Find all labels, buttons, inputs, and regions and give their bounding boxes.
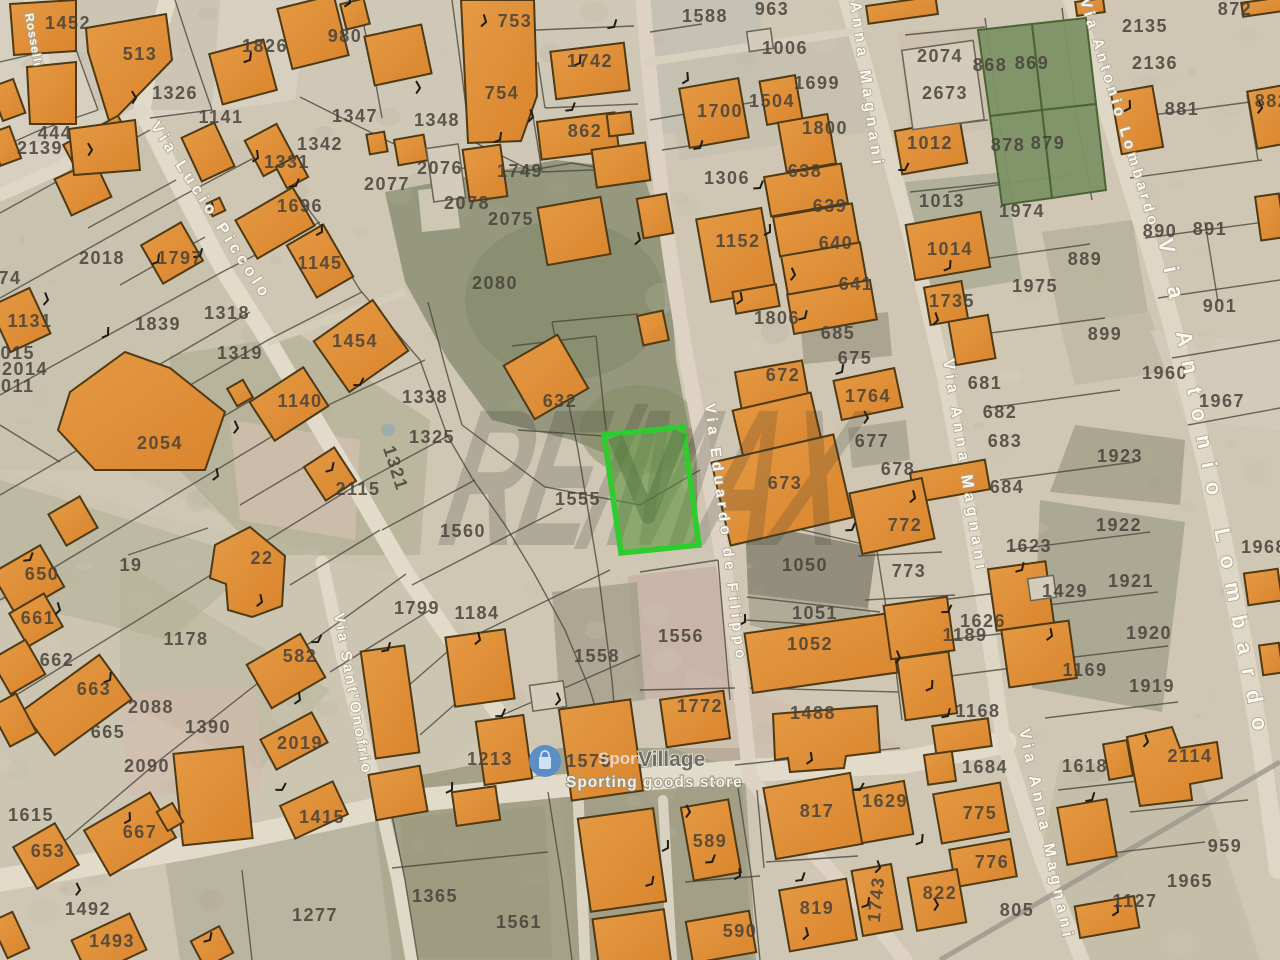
svg-text:678: 678 <box>881 459 916 479</box>
svg-text:2136: 2136 <box>1132 53 1178 73</box>
svg-text:2076: 2076 <box>417 158 463 178</box>
svg-text:868: 868 <box>973 55 1008 75</box>
svg-text:1277: 1277 <box>292 905 338 925</box>
svg-text:2075: 2075 <box>488 209 534 229</box>
svg-text:2135: 2135 <box>1122 16 1168 36</box>
svg-text:513: 513 <box>123 44 158 64</box>
svg-text:891: 891 <box>1193 219 1228 239</box>
svg-text:675: 675 <box>838 348 873 368</box>
svg-text:1052: 1052 <box>787 634 833 654</box>
svg-text:662: 662 <box>40 650 75 670</box>
svg-text:1326: 1326 <box>152 83 198 103</box>
svg-text:Village: Village <box>638 748 705 771</box>
svg-text:980: 980 <box>328 26 363 46</box>
svg-text:665: 665 <box>91 722 126 742</box>
svg-text:677: 677 <box>855 431 890 451</box>
svg-text:1975: 1975 <box>1012 276 1058 296</box>
svg-text:653: 653 <box>31 841 66 861</box>
svg-text:1006: 1006 <box>762 38 808 58</box>
svg-text:1684: 1684 <box>962 757 1008 777</box>
svg-text:1826: 1826 <box>242 36 288 56</box>
svg-text:1141: 1141 <box>198 107 243 127</box>
svg-text:1556: 1556 <box>658 626 704 646</box>
svg-text:1152: 1152 <box>715 231 760 251</box>
svg-text:959: 959 <box>1208 836 1243 856</box>
svg-text:2074: 2074 <box>917 46 963 66</box>
svg-text:1488: 1488 <box>790 703 836 723</box>
svg-text:773: 773 <box>892 561 927 581</box>
svg-text:1145: 1145 <box>297 253 342 273</box>
svg-text:2115: 2115 <box>335 479 380 499</box>
svg-text:1920: 1920 <box>1126 623 1172 643</box>
svg-text:650: 650 <box>25 564 60 584</box>
svg-text:963: 963 <box>755 0 790 19</box>
svg-text:2019: 2019 <box>277 733 323 753</box>
svg-text:881: 881 <box>1165 99 1200 119</box>
svg-text:1331: 1331 <box>264 152 310 172</box>
svg-text:672: 672 <box>766 365 801 385</box>
svg-text:661: 661 <box>21 608 56 628</box>
svg-text:1131: 1131 <box>7 311 52 331</box>
svg-text:632: 632 <box>543 391 578 411</box>
svg-text:2078: 2078 <box>444 193 490 213</box>
svg-text:1429: 1429 <box>1042 581 1088 601</box>
svg-text:1319: 1319 <box>217 343 263 363</box>
svg-text:1623: 1623 <box>1006 536 1052 556</box>
svg-text:640: 640 <box>819 233 854 253</box>
svg-text:882: 882 <box>1255 91 1280 111</box>
svg-text:1184: 1184 <box>454 603 499 623</box>
svg-text:1504: 1504 <box>749 91 795 111</box>
svg-text:1014: 1014 <box>927 239 973 259</box>
svg-text:1968: 1968 <box>1241 537 1280 557</box>
svg-text:1338: 1338 <box>402 387 448 407</box>
svg-text:22: 22 <box>250 548 273 568</box>
svg-text:1012: 1012 <box>907 133 953 153</box>
svg-text:1696: 1696 <box>277 196 323 216</box>
svg-text:872: 872 <box>1218 0 1253 19</box>
svg-text:681: 681 <box>968 373 1003 393</box>
svg-text:879: 879 <box>1031 133 1066 153</box>
svg-text:1922: 1922 <box>1096 515 1142 535</box>
svg-text:1318: 1318 <box>204 303 250 323</box>
svg-text:1127: 1127 <box>1112 891 1157 911</box>
svg-text:1797: 1797 <box>157 248 203 268</box>
svg-text:1348: 1348 <box>414 110 460 130</box>
svg-text:1615: 1615 <box>8 805 54 825</box>
svg-text:754: 754 <box>485 83 520 103</box>
svg-text:2018: 2018 <box>79 248 125 268</box>
svg-text:2077: 2077 <box>364 174 410 194</box>
svg-text:667: 667 <box>123 822 158 842</box>
svg-text:1749: 1749 <box>497 161 543 181</box>
svg-text:776: 776 <box>975 852 1010 872</box>
svg-text:753: 753 <box>498 11 533 31</box>
svg-text:1390: 1390 <box>185 717 231 737</box>
svg-text:582: 582 <box>283 646 318 666</box>
svg-text:817: 817 <box>800 801 835 821</box>
svg-text:685: 685 <box>821 323 856 343</box>
svg-text:1558: 1558 <box>574 646 620 666</box>
svg-text:1169: 1169 <box>1062 660 1107 680</box>
svg-text:1051: 1051 <box>792 603 838 623</box>
svg-text:639: 639 <box>813 196 848 216</box>
svg-text:1013: 1013 <box>919 191 965 211</box>
svg-text:683: 683 <box>988 431 1023 451</box>
svg-text:Sporting goods store: Sporting goods store <box>566 774 743 791</box>
svg-text:1764: 1764 <box>845 386 891 406</box>
svg-text:2090: 2090 <box>124 756 170 776</box>
svg-text:1560: 1560 <box>440 521 486 541</box>
svg-text:1189: 1189 <box>942 625 987 645</box>
svg-text:869: 869 <box>1015 53 1050 73</box>
svg-text:74: 74 <box>0 268 22 288</box>
svg-text:1561: 1561 <box>496 912 542 932</box>
svg-text:1700: 1700 <box>697 101 743 121</box>
svg-text:1306: 1306 <box>704 168 750 188</box>
svg-text:878: 878 <box>991 135 1026 155</box>
svg-text:822: 822 <box>923 883 958 903</box>
svg-text:1629: 1629 <box>862 791 908 811</box>
svg-text:2080: 2080 <box>472 273 518 293</box>
svg-text:2673: 2673 <box>922 83 968 103</box>
svg-text:663: 663 <box>77 679 112 699</box>
svg-text:1493: 1493 <box>89 931 135 951</box>
svg-text:2088: 2088 <box>128 697 174 717</box>
svg-text:1921: 1921 <box>1108 571 1154 591</box>
svg-text:1140: 1140 <box>277 391 322 411</box>
svg-text:1588: 1588 <box>682 6 728 26</box>
svg-text:2139: 2139 <box>17 138 63 158</box>
svg-text:1178: 1178 <box>163 629 208 649</box>
svg-text:1555: 1555 <box>555 489 601 509</box>
svg-text:1452: 1452 <box>45 13 91 33</box>
svg-text:805: 805 <box>1000 900 1035 920</box>
svg-text:1839: 1839 <box>135 314 181 334</box>
svg-text:641: 641 <box>839 274 874 294</box>
svg-text:1365: 1365 <box>412 886 458 906</box>
svg-text:1325: 1325 <box>409 427 455 447</box>
svg-text:2114: 2114 <box>1167 746 1212 766</box>
svg-text:1454: 1454 <box>332 331 378 351</box>
svg-text:901: 901 <box>1203 296 1238 316</box>
svg-text:1800: 1800 <box>802 118 848 138</box>
svg-text:1415: 1415 <box>299 807 345 827</box>
svg-text:682: 682 <box>983 402 1018 422</box>
svg-text:1050: 1050 <box>782 555 828 575</box>
svg-text:1342: 1342 <box>297 134 343 154</box>
svg-text:684: 684 <box>990 477 1025 497</box>
svg-text:1974: 1974 <box>999 201 1045 221</box>
svg-text:1772: 1772 <box>677 696 723 716</box>
svg-text:1742: 1742 <box>567 51 613 71</box>
svg-text:589: 589 <box>693 831 728 851</box>
svg-text:1919: 1919 <box>1129 676 1175 696</box>
svg-text:2054: 2054 <box>137 433 183 453</box>
svg-text:1806: 1806 <box>754 308 800 328</box>
svg-text:862: 862 <box>568 121 603 141</box>
svg-text:Sport: Sport <box>598 749 643 768</box>
svg-text:1213: 1213 <box>467 749 513 769</box>
svg-text:775: 775 <box>963 803 998 823</box>
svg-text:1168: 1168 <box>955 701 1000 721</box>
svg-text:673: 673 <box>768 473 803 493</box>
svg-text:1618: 1618 <box>1062 756 1108 776</box>
svg-text:19: 19 <box>119 555 142 575</box>
svg-text:772: 772 <box>888 515 923 535</box>
svg-text:899: 899 <box>1088 324 1123 344</box>
svg-text:1965: 1965 <box>1167 871 1213 891</box>
svg-text:1347: 1347 <box>332 106 378 126</box>
svg-text:1699: 1699 <box>794 73 840 93</box>
svg-text:819: 819 <box>800 898 835 918</box>
svg-text:1799: 1799 <box>394 598 440 618</box>
svg-text:1923: 1923 <box>1097 446 1143 466</box>
svg-text:1735: 1735 <box>929 291 975 311</box>
svg-text:1492: 1492 <box>65 899 111 919</box>
svg-text:2011: 2011 <box>0 376 35 396</box>
svg-text:638: 638 <box>788 161 823 181</box>
svg-text:889: 889 <box>1068 249 1103 269</box>
svg-text:590: 590 <box>723 921 758 941</box>
